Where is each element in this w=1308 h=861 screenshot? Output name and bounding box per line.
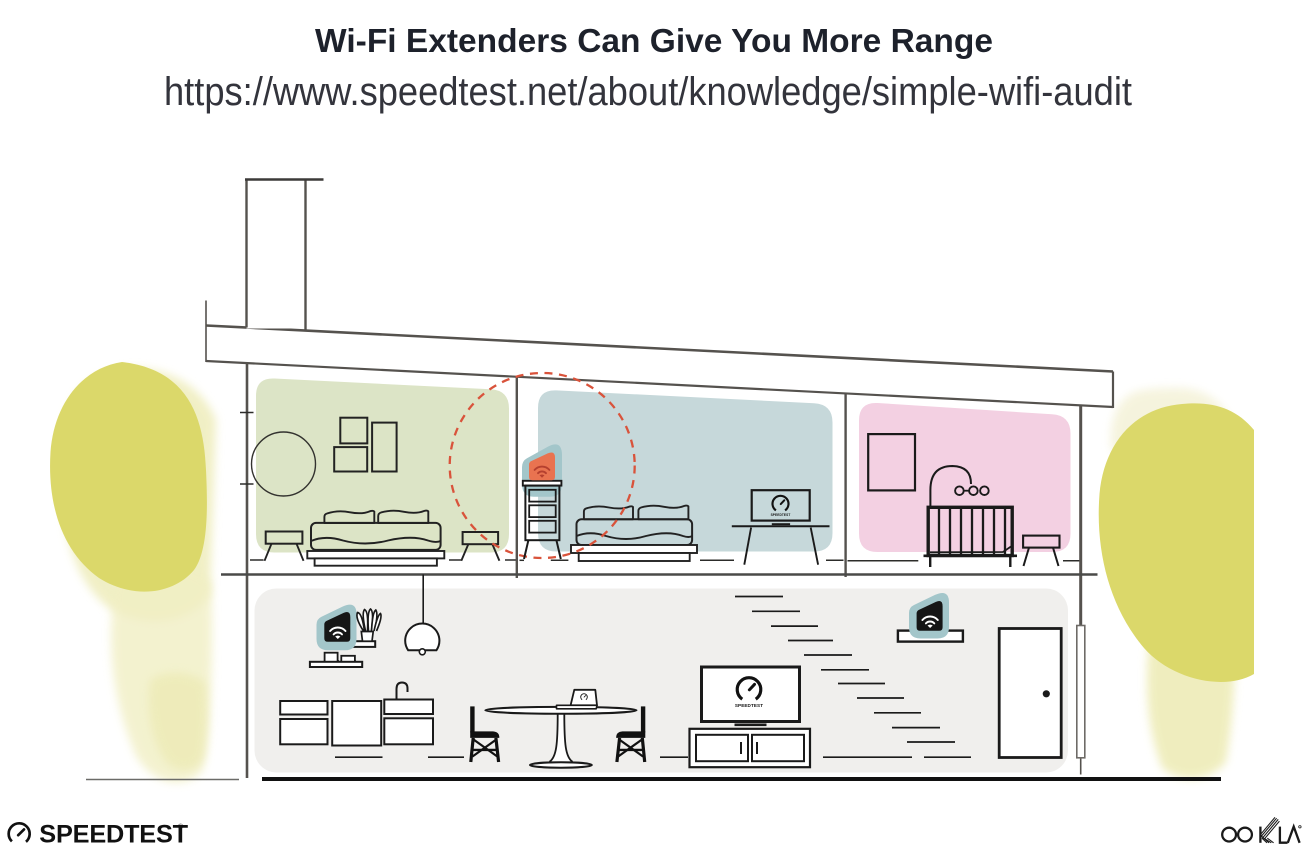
svg-text:SPEEDTEST: SPEEDTEST (39, 821, 188, 849)
svg-text:®: ® (178, 823, 184, 831)
svg-text:SPEEDTEST: SPEEDTEST (771, 513, 791, 517)
svg-text:SPEEDTEST: SPEEDTEST (735, 703, 763, 708)
